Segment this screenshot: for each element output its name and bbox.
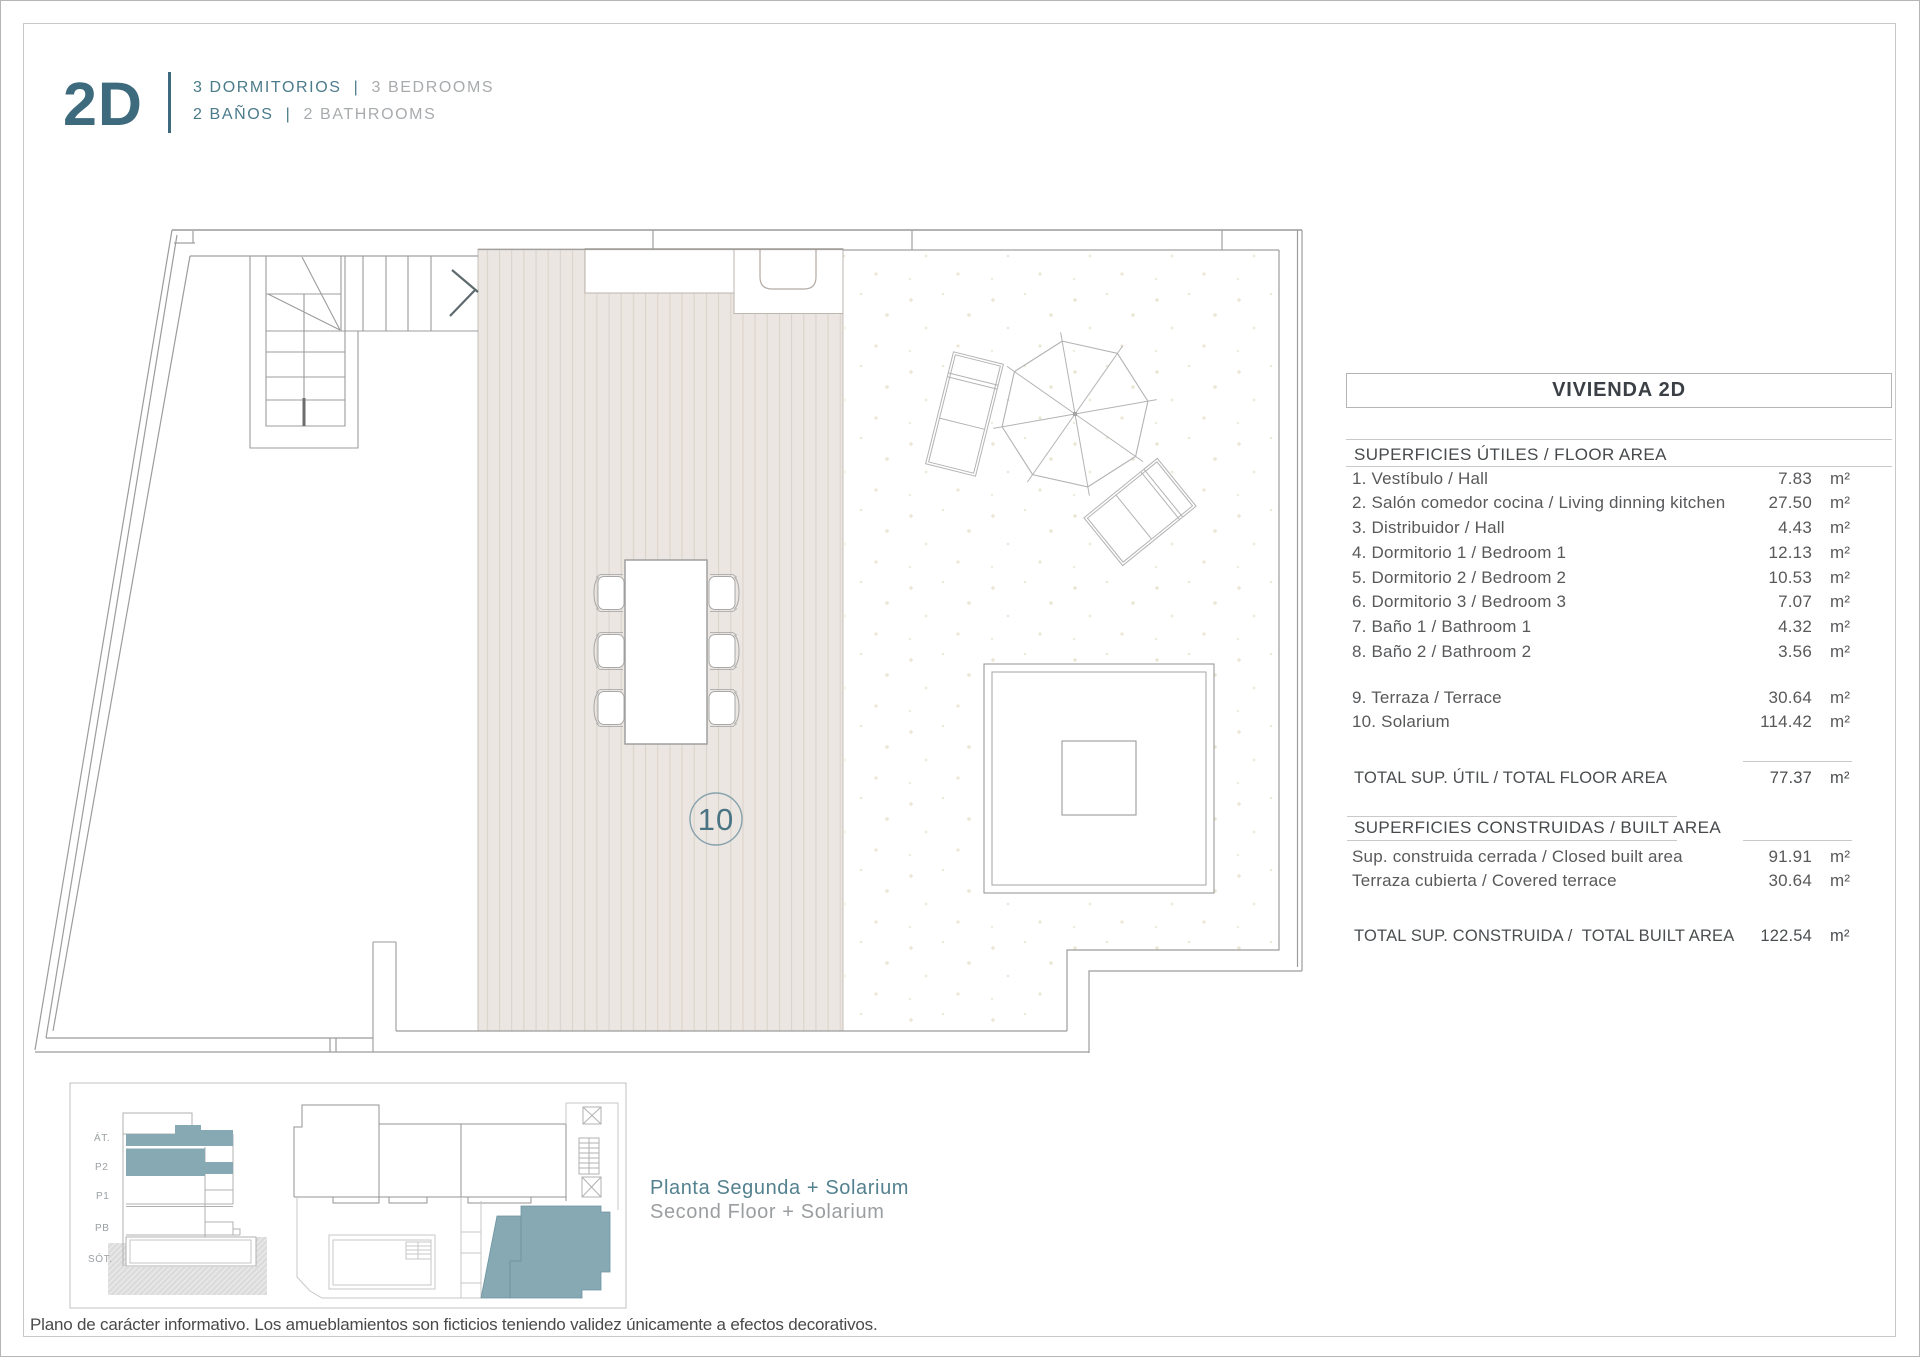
- svg-text:10: 10: [698, 802, 734, 837]
